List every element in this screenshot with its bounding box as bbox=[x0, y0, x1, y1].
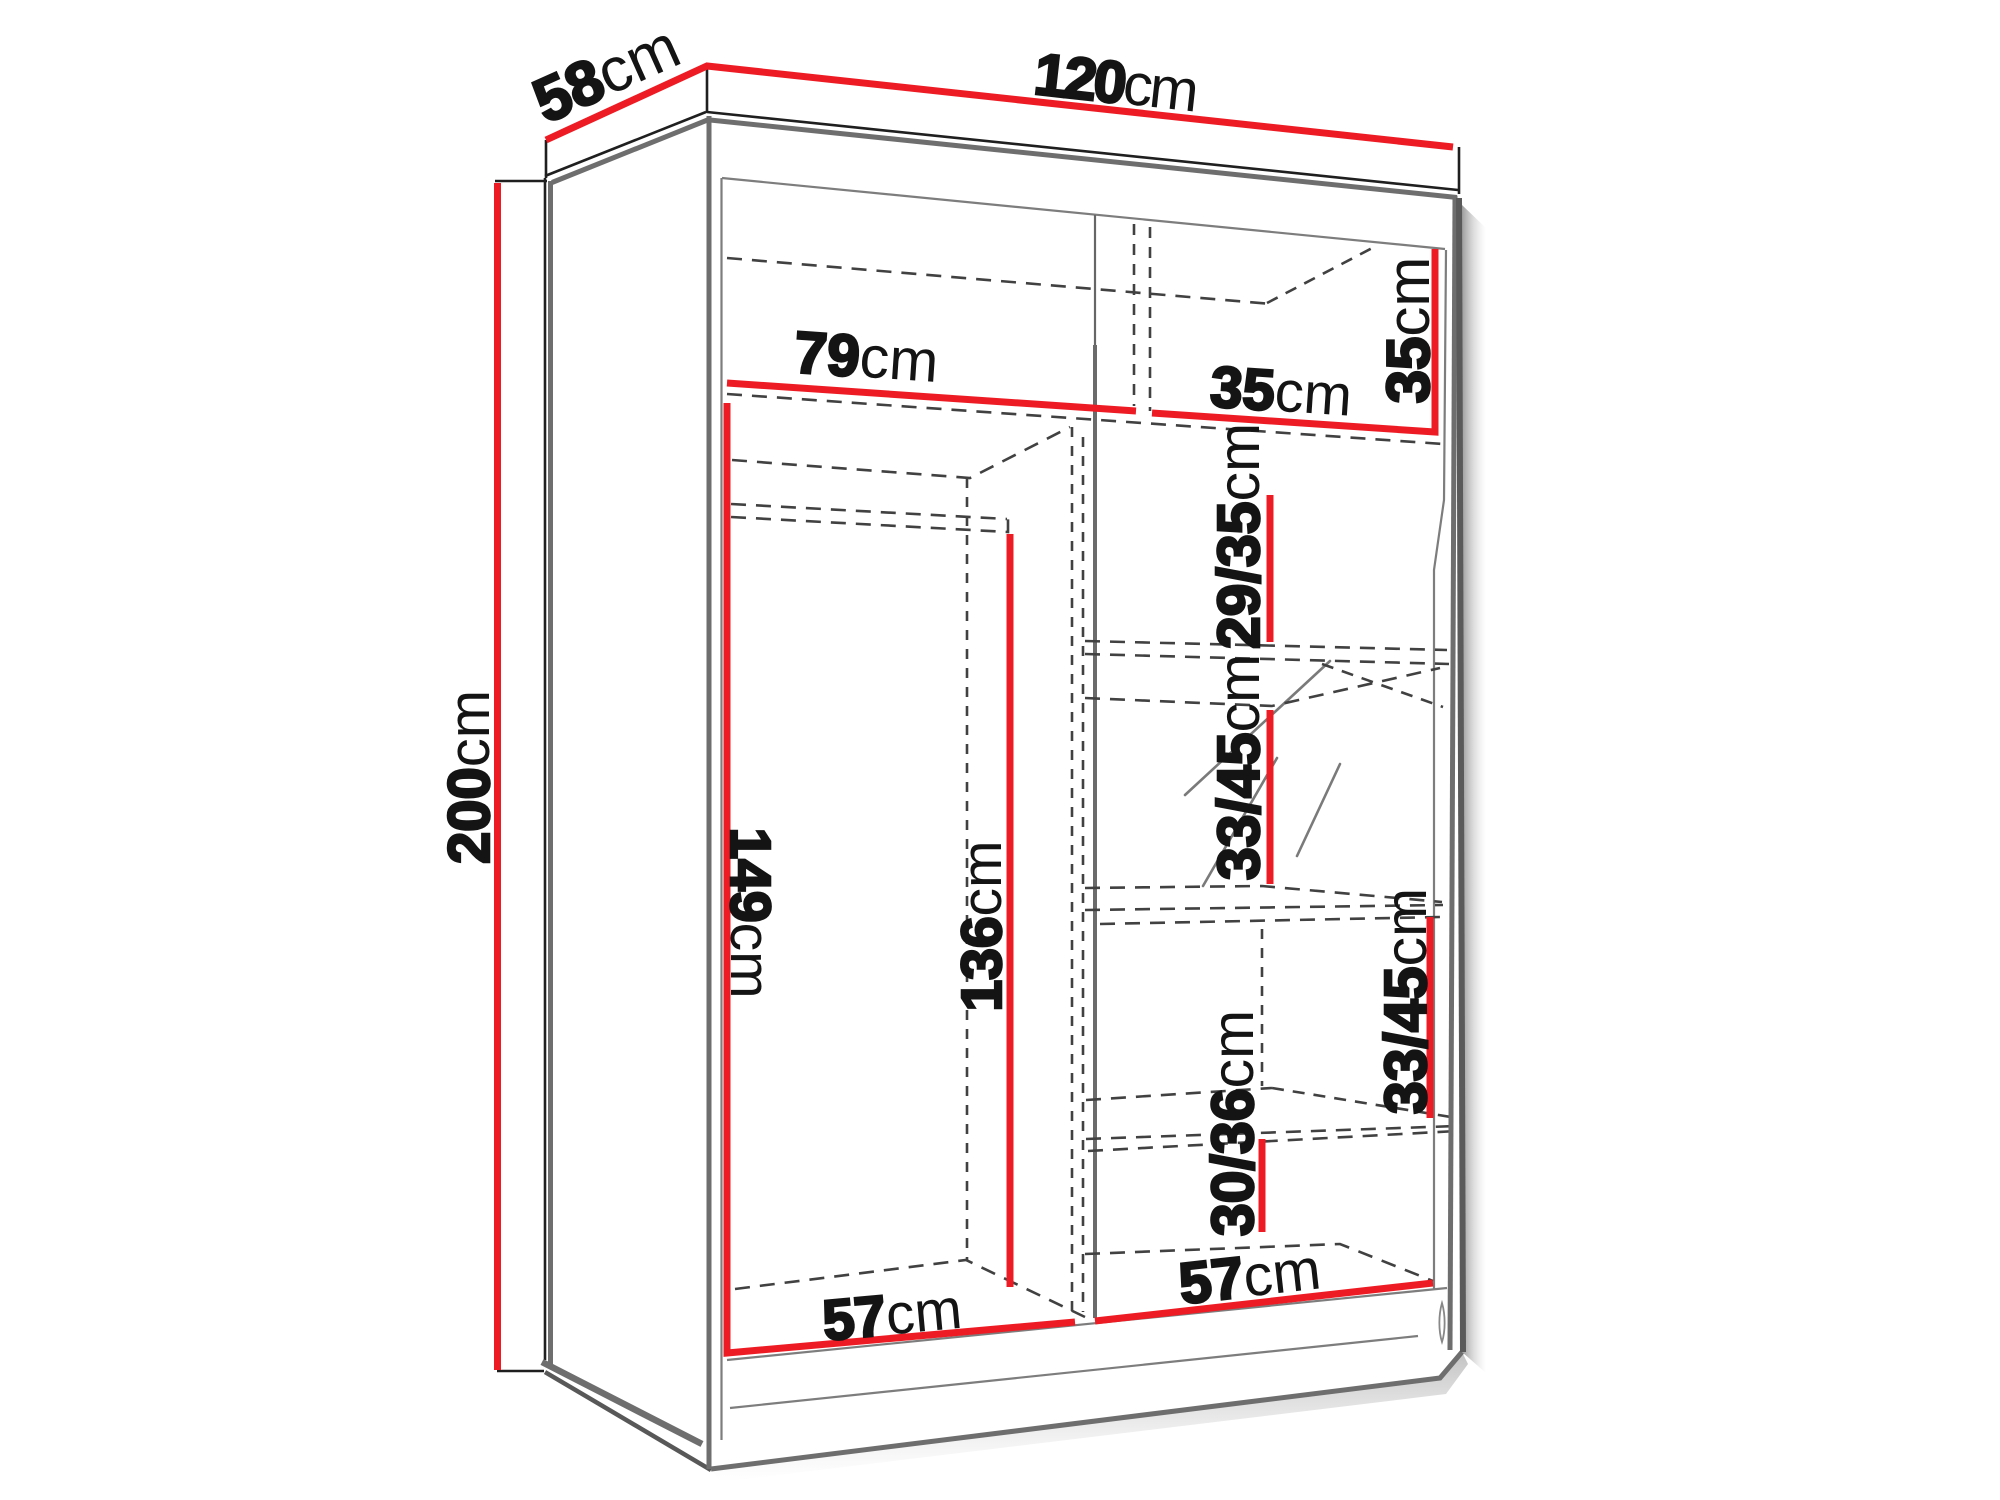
svg-text:33/45cm: 33/45cm bbox=[1206, 654, 1272, 880]
svg-text:29/35cm: 29/35cm bbox=[1206, 423, 1272, 649]
svg-text:35cm: 35cm bbox=[1375, 257, 1442, 404]
svg-text:200cm: 200cm bbox=[437, 690, 502, 864]
svg-text:136cm: 136cm bbox=[950, 840, 1014, 1011]
svg-text:33/45cm: 33/45cm bbox=[1373, 888, 1439, 1114]
svg-text:35cm: 35cm bbox=[1208, 354, 1354, 428]
svg-text:30/36cm: 30/36cm bbox=[1200, 1010, 1266, 1236]
svg-text:57cm: 57cm bbox=[820, 1277, 965, 1354]
svg-text:149cm: 149cm bbox=[718, 827, 782, 998]
svg-text:79cm: 79cm bbox=[792, 319, 940, 395]
